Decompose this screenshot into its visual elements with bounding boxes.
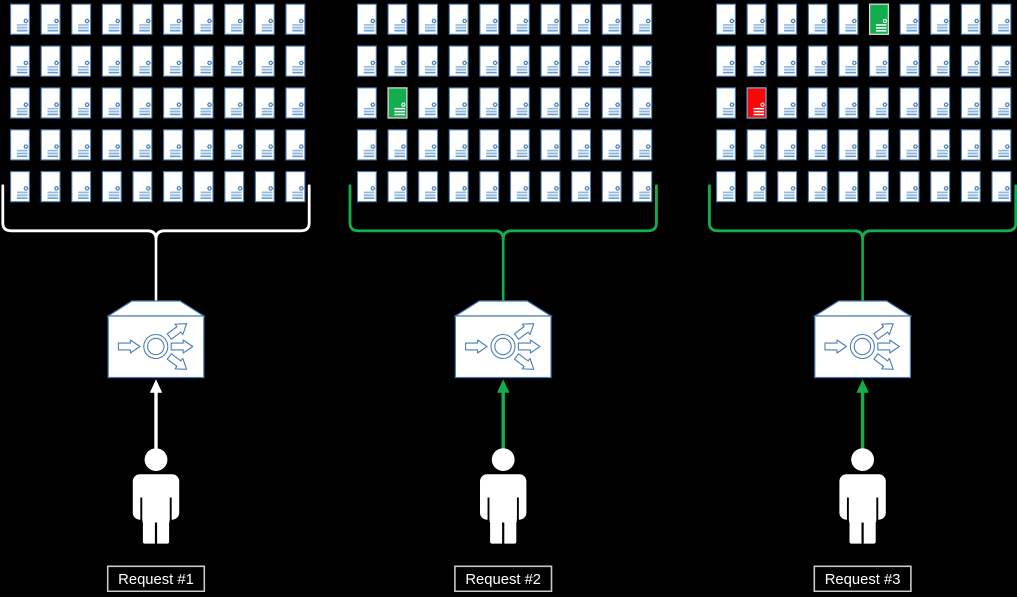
svg-text:Request #1: Request #1 [118,572,194,588]
svg-text:Request #2: Request #2 [465,572,541,588]
svg-text:Request #3: Request #3 [825,572,901,588]
